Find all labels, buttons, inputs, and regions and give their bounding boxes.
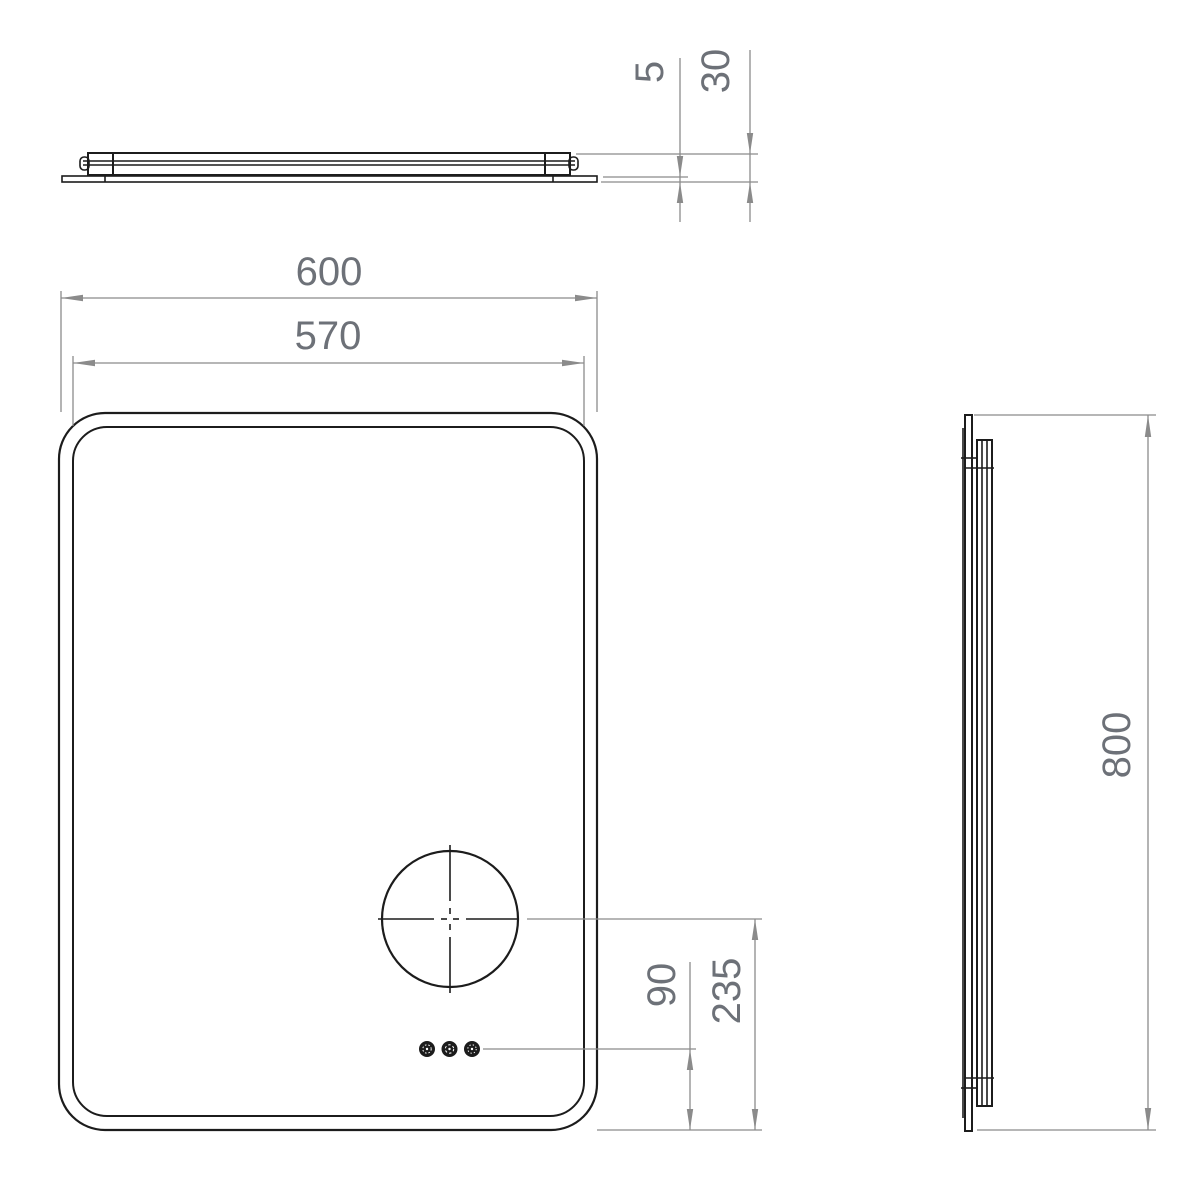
arrowhead xyxy=(747,133,753,154)
arrowhead xyxy=(61,295,83,301)
technical-drawing-page: 5 30 xyxy=(0,0,1200,1200)
magnifier-centerlines xyxy=(378,845,517,993)
arrowhead xyxy=(677,156,683,177)
arrowhead xyxy=(747,182,753,203)
overall-depth-label: 30 xyxy=(694,49,738,94)
front-view xyxy=(59,413,597,1130)
arrowhead xyxy=(73,360,95,366)
arrowhead xyxy=(687,1049,693,1070)
side-profile-view xyxy=(961,415,994,1131)
top-view-body-outline xyxy=(88,153,570,175)
height-dimension: 800 xyxy=(974,415,1156,1130)
overall-height-label: 800 xyxy=(1095,712,1139,779)
arrowhead xyxy=(687,1109,693,1130)
overall-width-label: 600 xyxy=(296,250,363,294)
arrowhead xyxy=(752,919,758,940)
touch-control-buttons xyxy=(419,1041,480,1057)
touch-button-icon xyxy=(464,1041,480,1057)
arrowhead xyxy=(752,1109,758,1130)
top-view-glass-plate xyxy=(62,176,597,182)
arrowhead xyxy=(1145,1108,1151,1130)
magnifier-offset-label: 235 xyxy=(705,958,749,1025)
arrowhead xyxy=(575,295,597,301)
width-dimensions: 600 570 xyxy=(61,250,597,426)
arrowhead xyxy=(1145,415,1151,437)
glass-thickness-label: 5 xyxy=(628,61,672,83)
arrowhead xyxy=(562,360,584,366)
top-profile-view xyxy=(62,153,597,182)
offset-dimensions: 90 235 xyxy=(483,919,762,1130)
side-view-glass xyxy=(965,415,972,1131)
arrowhead xyxy=(677,182,683,203)
controls-offset-label: 90 xyxy=(640,963,684,1008)
depth-dimensions: 5 30 xyxy=(576,49,758,222)
side-view-body xyxy=(977,440,992,1106)
mirror-technical-drawing: 5 30 xyxy=(0,0,1200,1200)
mirror-inner-outline xyxy=(73,427,584,1116)
inner-width-label: 570 xyxy=(295,314,362,358)
mirror-outer-outline xyxy=(59,413,597,1130)
touch-button-icon xyxy=(442,1041,458,1057)
touch-button-icon xyxy=(419,1041,435,1057)
